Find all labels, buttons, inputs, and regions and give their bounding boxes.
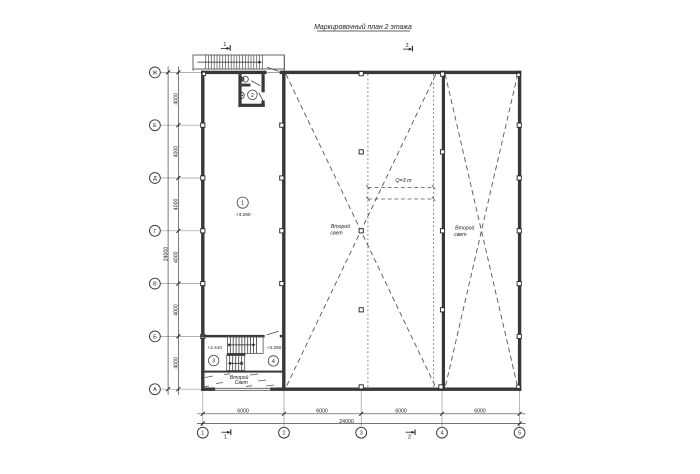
svg-text:Ж: Ж <box>152 70 157 76</box>
svg-text:1: 1 <box>224 434 227 440</box>
svg-text:24000: 24000 <box>163 247 169 262</box>
svg-text:4000: 4000 <box>174 357 180 369</box>
svg-text:Второй: Второй <box>455 225 474 232</box>
svg-text:+3.250: +3.250 <box>267 345 282 351</box>
svg-text:Е: Е <box>153 123 157 129</box>
svg-text:Д: Д <box>153 176 157 182</box>
svg-text:1: 1 <box>201 431 204 437</box>
svg-text:4000: 4000 <box>174 199 180 211</box>
svg-text:2: 2 <box>408 434 411 440</box>
svg-text:6000: 6000 <box>237 409 249 415</box>
svg-text:2: 2 <box>251 93 254 99</box>
svg-text:1: 1 <box>241 201 244 207</box>
svg-text:+2.410: +2.410 <box>207 345 222 351</box>
svg-text:4000: 4000 <box>174 146 180 158</box>
svg-text:24000: 24000 <box>339 419 354 425</box>
svg-text:Г: Г <box>153 229 156 235</box>
svg-text:1: 1 <box>223 42 226 48</box>
svg-text:4000: 4000 <box>174 93 180 105</box>
svg-text:6000: 6000 <box>395 409 407 415</box>
svg-text:5: 5 <box>518 431 521 437</box>
svg-text:4000: 4000 <box>174 251 180 263</box>
svg-text:Маркировочный план 2 этажа: Маркировочный план 2 этажа <box>314 23 412 31</box>
svg-text:свет: свет <box>330 231 343 237</box>
svg-text:6000: 6000 <box>316 409 328 415</box>
svg-text:4: 4 <box>441 431 444 437</box>
svg-text:Свет: Свет <box>235 380 248 386</box>
svg-text:3: 3 <box>360 431 363 437</box>
svg-text:2: 2 <box>283 431 286 437</box>
svg-text:Второй: Второй <box>331 223 350 230</box>
svg-text:Q=3 т: Q=3 т <box>395 178 412 184</box>
svg-text:6000: 6000 <box>474 409 486 415</box>
svg-text:2: 2 <box>405 43 408 49</box>
svg-text:В: В <box>153 282 157 288</box>
svg-text:А: А <box>153 387 157 393</box>
svg-text:4000: 4000 <box>174 304 180 316</box>
svg-text:4: 4 <box>272 359 275 365</box>
svg-text:Б: Б <box>153 334 157 340</box>
svg-text:свет: свет <box>454 232 467 238</box>
svg-text:+3.290: +3.290 <box>236 212 251 218</box>
svg-text:3: 3 <box>212 359 215 365</box>
